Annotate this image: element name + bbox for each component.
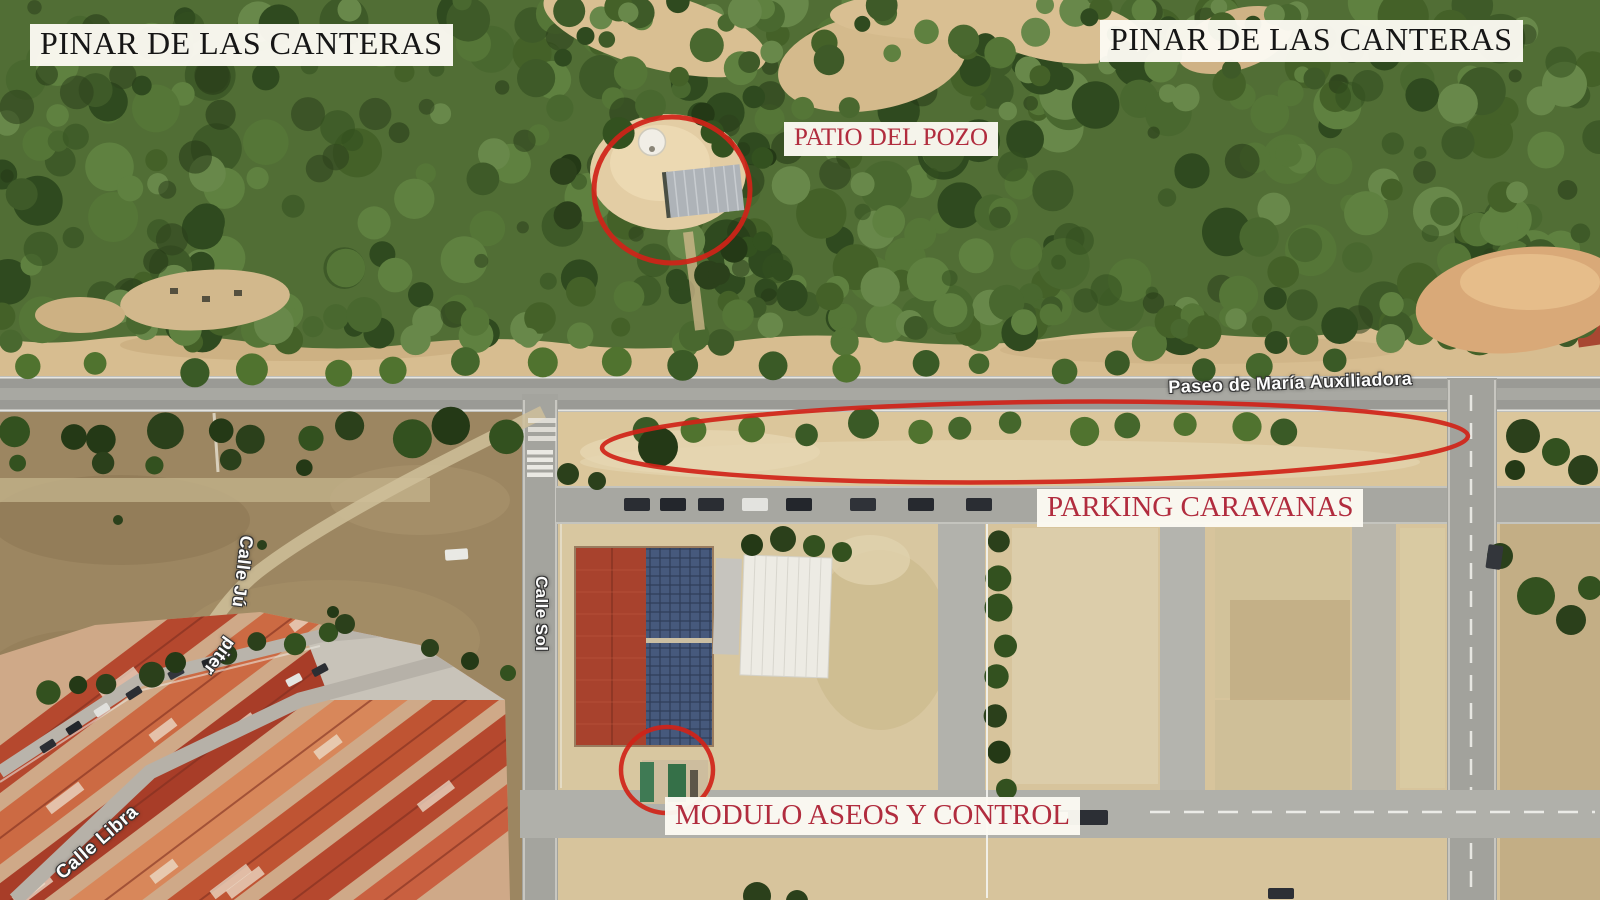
annotation-label-parking-caravanas: PARKING CARAVANAS [1037,489,1363,527]
area-label-pinar-left: PINAR DE LAS CANTERAS [30,24,453,66]
map-canvas: PINAR DE LAS CANTERAS PINAR DE LAS CANTE… [0,0,1600,900]
area-label-pinar-right: PINAR DE LAS CANTERAS [1100,20,1523,62]
street-label-calle-sol: Calle Sol [531,576,551,651]
annotation-label-modulo-aseos: MODULO ASEOS Y CONTROL [665,797,1080,835]
annotation-label-patio-del-pozo: PATIO DEL POZO [784,122,998,156]
